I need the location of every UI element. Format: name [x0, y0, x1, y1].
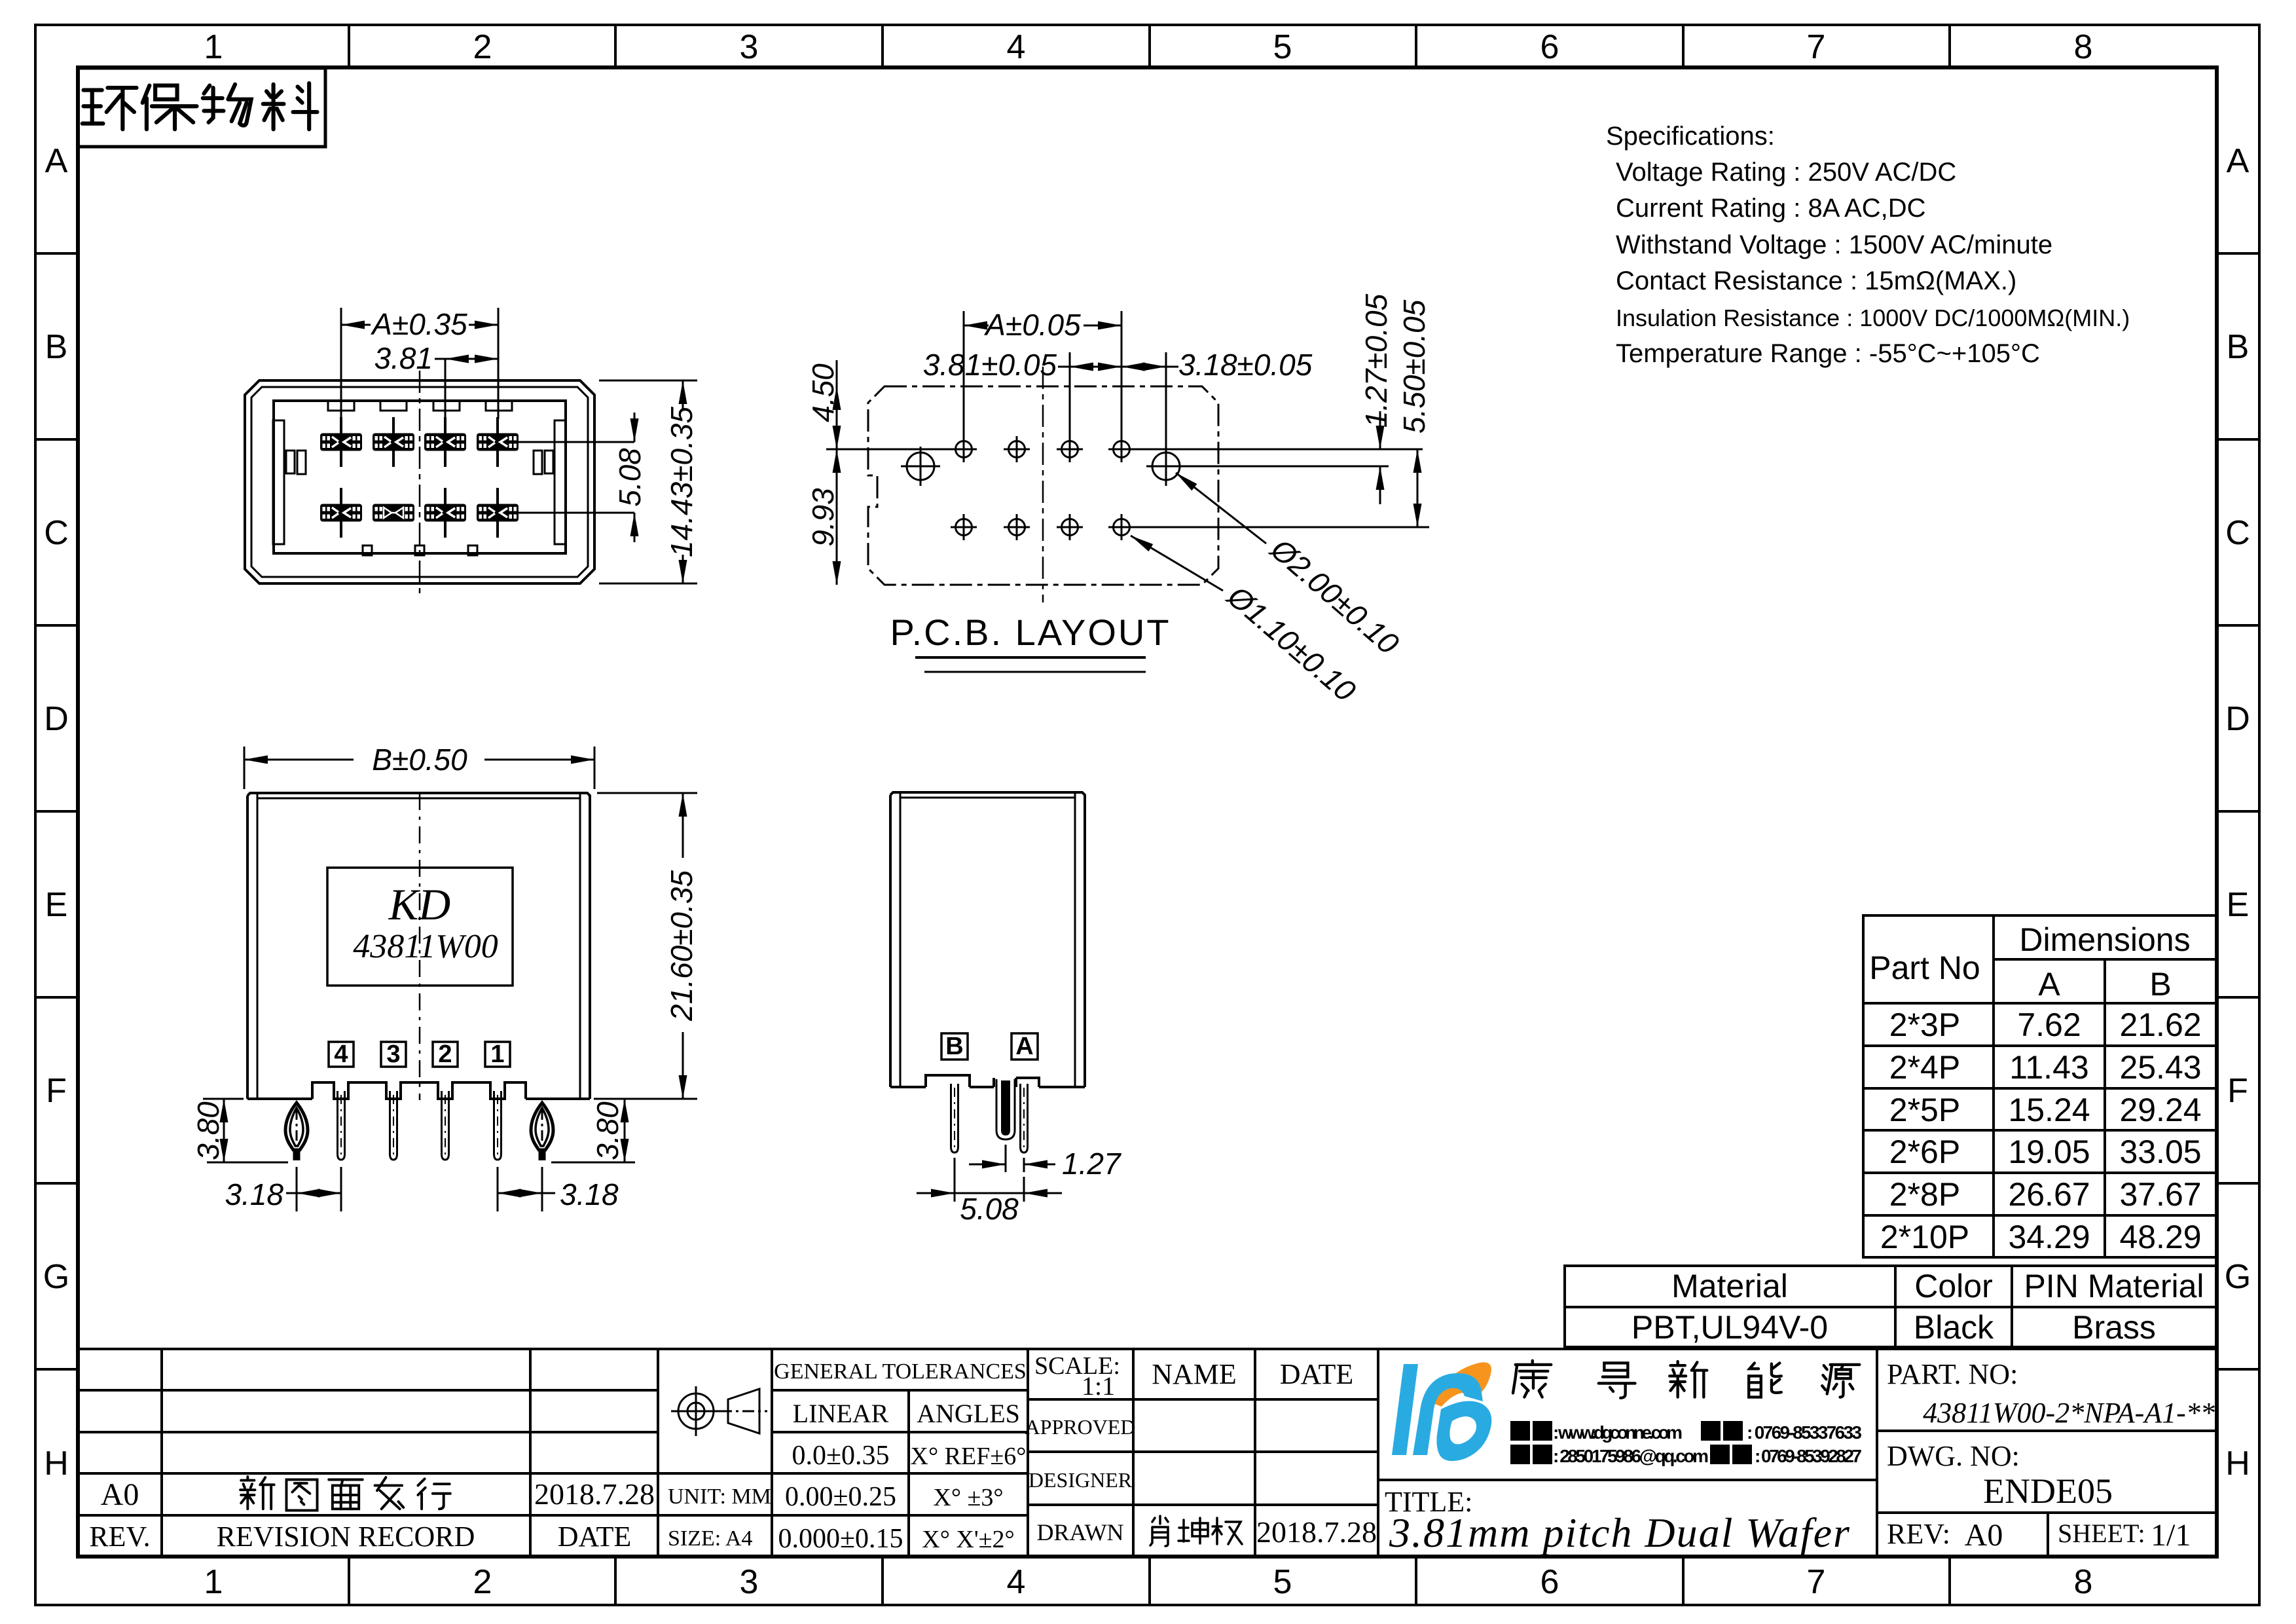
svg-text:Part No: Part No: [1869, 950, 1980, 986]
svg-text:2*3P: 2*3P: [1889, 1006, 1960, 1043]
svg-text:3.81±0.05: 3.81±0.05: [923, 348, 1057, 382]
svg-text:B: B: [2149, 966, 2171, 1003]
svg-text:GENERAL TOLERANCES: GENERAL TOLERANCES: [774, 1359, 1027, 1384]
svg-text:F: F: [46, 1072, 67, 1110]
svg-text:26.67: 26.67: [2008, 1176, 2090, 1213]
svg-text:E: E: [2227, 886, 2250, 924]
svg-text:B±0.50: B±0.50: [372, 743, 467, 777]
svg-text:3.18: 3.18: [225, 1177, 283, 1211]
svg-text:6: 6: [1540, 28, 1559, 66]
svg-text:Dimensions: Dimensions: [2019, 921, 2190, 958]
svg-text:48.29: 48.29: [2119, 1219, 2201, 1255]
svg-text:2018.7.28: 2018.7.28: [1256, 1515, 1377, 1549]
svg-text:3.81mm pitch Dual Wafer: 3.81mm pitch Dual Wafer: [1389, 1509, 1851, 1556]
svg-text:UNIT: MM: UNIT: MM: [668, 1485, 771, 1509]
svg-text:Brass: Brass: [2072, 1309, 2156, 1346]
svg-text:0.00±0.25: 0.00±0.25: [785, 1482, 896, 1512]
svg-text:5.50±0.05: 5.50±0.05: [1397, 299, 1431, 434]
svg-text:33.05: 33.05: [2119, 1134, 2201, 1170]
svg-text:X° ±3°: X° ±3°: [933, 1484, 1003, 1511]
svg-text:1: 1: [204, 1563, 223, 1601]
svg-text:X° REF±6°: X° REF±6°: [911, 1443, 1027, 1470]
svg-text:3.81: 3.81: [374, 341, 433, 375]
svg-text:15.24: 15.24: [2008, 1092, 2090, 1128]
svg-text:3: 3: [386, 1041, 400, 1068]
svg-text:43811W00-2*NPA-A1-**: 43811W00-2*NPA-A1-**: [1923, 1397, 2215, 1429]
svg-text:: 2850175986@qq.com: : 2850175986@qq.com: [1553, 1446, 1709, 1466]
svg-text:D: D: [44, 700, 69, 738]
svg-text:SIZE: A4: SIZE: A4: [668, 1526, 752, 1551]
svg-text:Temperature Range : -55°C~+105: Temperature Range : -55°C~+105°C: [1616, 339, 2040, 368]
svg-text:3: 3: [740, 1563, 759, 1601]
svg-text:2*4P: 2*4P: [1889, 1049, 1960, 1086]
svg-text:5: 5: [1273, 1563, 1292, 1601]
svg-text:5: 5: [1273, 28, 1292, 66]
svg-text:0.000±0.15: 0.000±0.15: [778, 1524, 903, 1554]
svg-text:DRAWN: DRAWN: [1036, 1519, 1123, 1545]
svg-text:1: 1: [204, 28, 223, 66]
svg-text:Current Rating : 8A AC,DC: Current Rating : 8A AC,DC: [1616, 194, 1926, 223]
svg-text:14.43±0.35: 14.43±0.35: [665, 407, 699, 557]
svg-text:2: 2: [473, 28, 492, 66]
svg-text:43811W00: 43811W00: [353, 928, 498, 965]
svg-text:2*6P: 2*6P: [1889, 1134, 1960, 1170]
svg-text:F: F: [2227, 1072, 2248, 1110]
svg-text:5.08: 5.08: [613, 448, 647, 507]
svg-text:G: G: [2225, 1258, 2251, 1296]
svg-text:6: 6: [1540, 1563, 1559, 1601]
svg-text:3.80: 3.80: [591, 1101, 625, 1160]
svg-text:Contact Resistance : 15mΩ(MAX.: Contact Resistance : 15mΩ(MAX.): [1616, 267, 2016, 295]
svg-text:2*8P: 2*8P: [1889, 1176, 1960, 1213]
svg-text:A: A: [2227, 142, 2250, 180]
svg-text:: 0769-85337633: : 0769-85337633: [1747, 1422, 1862, 1443]
svg-text:DWG. NO:: DWG. NO:: [1887, 1440, 2020, 1472]
svg-text:Specifications:: Specifications:: [1606, 122, 1775, 151]
svg-text:3: 3: [740, 28, 759, 66]
svg-text:PIN Material: PIN Material: [2024, 1268, 2204, 1304]
svg-text:34.29: 34.29: [2008, 1219, 2090, 1255]
svg-text:3.18: 3.18: [560, 1177, 619, 1211]
svg-text:A±0.05: A±0.05: [983, 308, 1081, 342]
svg-text:8: 8: [2074, 1563, 2093, 1601]
svg-text:7: 7: [1807, 1563, 1826, 1601]
svg-text:1.27: 1.27: [1062, 1147, 1121, 1181]
svg-text:1.27±0.05: 1.27±0.05: [1359, 293, 1393, 428]
svg-text:5.08: 5.08: [960, 1192, 1019, 1226]
svg-text:REV.: REV.: [89, 1521, 150, 1553]
svg-text:E: E: [45, 886, 68, 924]
svg-text:REVISION RECORD: REVISION RECORD: [217, 1521, 475, 1553]
svg-text:KD: KD: [388, 879, 450, 929]
svg-text:11.43: 11.43: [2009, 1049, 2088, 1086]
svg-text:: 0769-85392827: : 0769-85392827: [1755, 1446, 1862, 1466]
svg-text:4.50: 4.50: [806, 363, 840, 422]
svg-text:NAME: NAME: [1152, 1358, 1237, 1390]
svg-text:21.60±0.35: 21.60±0.35: [665, 870, 699, 1022]
svg-text:B: B: [945, 1033, 963, 1060]
svg-text:2*10P: 2*10P: [1880, 1219, 1969, 1255]
svg-text:D: D: [2225, 700, 2250, 738]
svg-text:Withstand Voltage : 1500V AC/m: Withstand Voltage : 1500V AC/minute: [1616, 231, 2052, 259]
svg-text:9.93: 9.93: [806, 488, 840, 547]
svg-text:DATE: DATE: [558, 1521, 631, 1553]
svg-text:2018.7.28: 2018.7.28: [534, 1477, 655, 1511]
svg-text:25.43: 25.43: [2119, 1049, 2201, 1086]
svg-text:1/1: 1/1: [2151, 1518, 2191, 1553]
svg-text:A0: A0: [1965, 1518, 2003, 1553]
svg-text:DATE: DATE: [1280, 1358, 1353, 1390]
svg-text:Color: Color: [1914, 1268, 1992, 1304]
svg-text:SHEET:: SHEET:: [2058, 1519, 2145, 1548]
svg-text:APPROVED: APPROVED: [1025, 1415, 1136, 1439]
svg-text:21.62: 21.62: [2119, 1006, 2201, 1043]
svg-text:Black: Black: [1914, 1309, 1994, 1346]
svg-text:A: A: [2038, 966, 2060, 1003]
svg-text:H: H: [2225, 1445, 2250, 1483]
svg-text:A: A: [1015, 1033, 1033, 1060]
svg-text:A±0.35: A±0.35: [370, 307, 467, 341]
svg-text:PBT,UL94V-0: PBT,UL94V-0: [1631, 1309, 1828, 1346]
svg-text:29.24: 29.24: [2119, 1092, 2201, 1128]
svg-text:ANGLES: ANGLES: [917, 1399, 1020, 1428]
svg-text:0.0±0.35: 0.0±0.35: [792, 1441, 889, 1471]
svg-text:19.05: 19.05: [2008, 1134, 2090, 1170]
svg-text:1: 1: [490, 1041, 504, 1068]
svg-text:: www.dgconne.com: : www.dgconne.com: [1553, 1422, 1683, 1443]
svg-text:2: 2: [473, 1563, 492, 1601]
svg-text:DESIGNER: DESIGNER: [1029, 1468, 1133, 1492]
svg-text:PART. NO:: PART. NO:: [1887, 1358, 2018, 1390]
svg-text:A0: A0: [101, 1477, 139, 1512]
svg-text:A: A: [45, 142, 68, 180]
svg-text:B: B: [2227, 328, 2250, 366]
svg-text:8: 8: [2074, 28, 2093, 66]
svg-text:2*5P: 2*5P: [1889, 1092, 1960, 1128]
svg-text:B: B: [45, 328, 68, 366]
svg-text:REV:: REV:: [1887, 1518, 1950, 1550]
svg-text:4: 4: [334, 1041, 348, 1068]
svg-text:Insulation Resistance : 1000V: Insulation Resistance : 1000V DC/1000MΩ(…: [1616, 304, 2130, 331]
svg-text:ENDE05: ENDE05: [1983, 1471, 2113, 1511]
svg-text:G: G: [43, 1258, 69, 1296]
svg-text:P.C.B. LAYOUT: P.C.B. LAYOUT: [890, 612, 1171, 653]
svg-text:X° X'±2°: X° X'±2°: [922, 1526, 1014, 1553]
svg-text:LINEAR: LINEAR: [793, 1399, 889, 1428]
svg-text:4: 4: [1007, 1563, 1026, 1601]
svg-text:Voltage Rating : 250V AC/DC: Voltage Rating : 250V AC/DC: [1616, 158, 1956, 187]
svg-text:C: C: [44, 514, 69, 552]
svg-text:7.62: 7.62: [2017, 1006, 2081, 1043]
svg-text:3.80: 3.80: [191, 1101, 225, 1160]
svg-text:3.18±0.05: 3.18±0.05: [1178, 348, 1313, 382]
svg-text:1:1: 1:1: [1082, 1371, 1115, 1401]
svg-text:37.67: 37.67: [2119, 1176, 2201, 1213]
svg-text:C: C: [2225, 514, 2250, 552]
svg-text:4: 4: [1007, 28, 1026, 66]
svg-text:Material: Material: [1671, 1268, 1788, 1304]
svg-text:7: 7: [1807, 28, 1826, 66]
svg-text:2: 2: [438, 1041, 452, 1068]
svg-text:H: H: [44, 1445, 69, 1483]
